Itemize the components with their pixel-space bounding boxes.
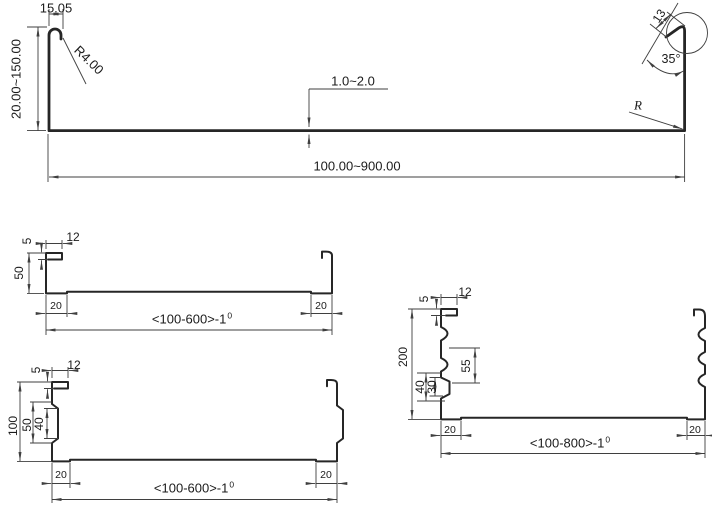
dim-panel-thickness: 1.0~2.0 (331, 75, 375, 88)
dim-panel-leg-height: 20.00~150.00 (10, 39, 23, 119)
dim-tray50-end-right: 20 (315, 301, 327, 312)
dim-tray200-wall-height: 200 (397, 347, 409, 367)
dim-tray200-rib-inner: 30 (426, 380, 438, 393)
dim-panel-corner-radius: R (634, 99, 642, 112)
dim-tray100-width: <100-600>-10 (154, 482, 234, 495)
dim-tray50-wall-height: 50 (13, 266, 25, 279)
dim-panel-tip-angle: 35° (662, 53, 681, 66)
tray50-outline (46, 252, 332, 294)
dim-tray200-lip-width: 12 (458, 286, 471, 298)
panel-dimensions (27, 3, 708, 182)
dim-tray100-rib-inner: 40 (33, 417, 45, 430)
technical-drawing: 15.05 20.00~150.00 R4.00 1.0~2.0 100.00~… (0, 0, 712, 508)
dim-tray200-width: <100-800>-10 (530, 437, 610, 450)
dim-tray50-lip-height: 5 (21, 238, 33, 245)
dim-tray200-end-left: 20 (444, 425, 456, 436)
dim-tray200-rib-spacing: 55 (460, 359, 472, 372)
dim-panel-hook-width: 15.05 (40, 2, 73, 15)
tray100-outline (52, 380, 343, 461)
dim-tray50-lip-width: 12 (66, 231, 79, 243)
dim-tray50-width: <100-600>-10 (152, 313, 232, 326)
dim-tray100-lip-width: 12 (67, 359, 80, 371)
dim-tray100-end-left: 20 (55, 470, 67, 481)
dim-tray100-lip-height: 5 (30, 367, 42, 374)
dim-tray200-lip-height: 5 (418, 296, 430, 303)
dim-panel-width: 100.00~900.00 (313, 160, 400, 173)
tray200-outline (441, 309, 705, 419)
dim-tray50-end-left: 20 (50, 301, 62, 312)
dim-tray100-wall-height: 100 (7, 416, 19, 436)
dim-tray100-end-right: 20 (320, 470, 332, 481)
dim-tray200-end-right: 20 (689, 425, 701, 436)
